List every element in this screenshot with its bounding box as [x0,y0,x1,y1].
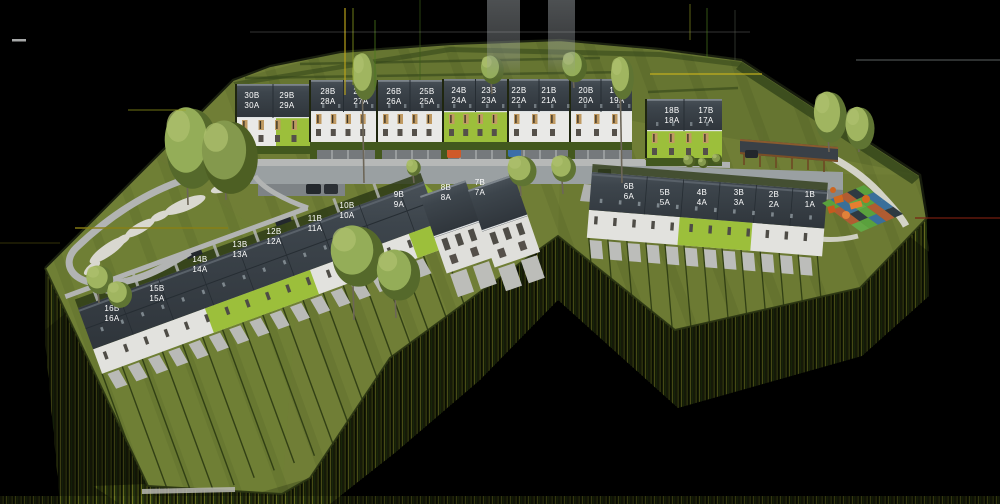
svg-text:7B: 7B [475,178,485,187]
svg-text:3B: 3B [734,188,744,197]
svg-text:2B: 2B [769,190,779,199]
svg-text:20A: 20A [578,96,593,105]
svg-text:13B: 13B [232,240,247,249]
svg-text:14B: 14B [192,255,207,264]
svg-text:11A: 11A [308,224,323,233]
svg-text:15A: 15A [149,294,164,303]
svg-text:4A: 4A [697,198,708,207]
svg-text:6A: 6A [624,192,635,201]
svg-text:30A: 30A [244,101,259,110]
svg-text:7A: 7A [475,188,486,197]
svg-text:14A: 14A [192,265,207,274]
svg-text:9A: 9A [394,200,405,209]
svg-text:5B: 5B [660,188,670,197]
svg-text:12B: 12B [266,227,281,236]
svg-text:13A: 13A [232,250,247,259]
svg-text:2A: 2A [769,200,780,209]
svg-text:21B: 21B [541,86,556,95]
svg-text:15B: 15B [149,284,164,293]
svg-text:23A: 23A [481,96,496,105]
svg-text:9B: 9B [394,190,404,199]
svg-text:23B: 23B [481,86,496,95]
svg-text:24B: 24B [451,86,466,95]
svg-text:3A: 3A [734,198,745,207]
svg-text:21A: 21A [541,96,556,105]
svg-text:10B: 10B [339,201,354,210]
svg-text:1A: 1A [805,200,816,209]
svg-text:8B: 8B [441,183,451,192]
svg-text:16A: 16A [104,314,119,323]
svg-text:10A: 10A [339,211,354,220]
svg-text:30B: 30B [244,91,259,100]
svg-text:29A: 29A [279,101,294,110]
svg-text:25B: 25B [419,87,434,96]
svg-text:22A: 22A [511,96,526,105]
svg-text:18B: 18B [664,106,679,115]
svg-text:20B: 20B [578,86,593,95]
svg-text:4B: 4B [697,188,707,197]
svg-text:11B: 11B [308,214,323,223]
svg-text:8A: 8A [441,193,452,202]
svg-text:17B: 17B [698,106,713,115]
svg-text:28B: 28B [320,87,335,96]
svg-text:5A: 5A [660,198,671,207]
svg-text:22B: 22B [511,86,526,95]
svg-text:26B: 26B [386,87,401,96]
svg-text:29B: 29B [279,91,294,100]
svg-text:12A: 12A [266,237,281,246]
svg-text:1B: 1B [805,190,815,199]
svg-text:24A: 24A [451,96,466,105]
svg-text:6B: 6B [624,182,634,191]
